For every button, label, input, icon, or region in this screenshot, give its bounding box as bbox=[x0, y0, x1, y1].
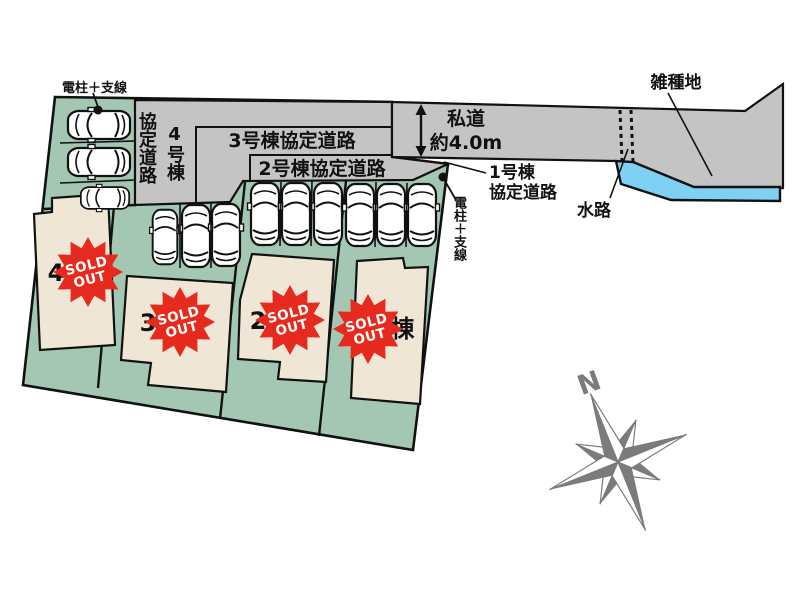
car bbox=[311, 183, 346, 245]
parking-divider-line bbox=[280, 182, 281, 246]
utility-pole-dot bbox=[94, 106, 103, 115]
car bbox=[209, 204, 244, 266]
utility-pole-label-top: 電柱＋支線 bbox=[62, 77, 127, 96]
car bbox=[68, 145, 130, 180]
waterway-label: 水路 bbox=[577, 200, 612, 221]
road1-label-line2: 協定道路 bbox=[489, 182, 558, 203]
car bbox=[343, 184, 378, 246]
parked-cars-plot3 bbox=[150, 204, 244, 267]
parking-divider-line bbox=[406, 183, 407, 247]
road1-leader bbox=[444, 162, 486, 173]
utility-pole-dot bbox=[439, 173, 448, 182]
parking-divider-line bbox=[311, 181, 312, 246]
road3-label: 3号棟協定道路 bbox=[228, 129, 356, 152]
car bbox=[150, 210, 181, 265]
road1-label-line1: 1号棟 bbox=[489, 162, 536, 183]
compass-rose bbox=[522, 366, 715, 559]
car bbox=[81, 184, 129, 211]
car bbox=[405, 184, 440, 246]
site-plan-canvas: 3号棟協定道路 2号棟協定道路 私道 約4.0m 1号棟 協定道路 雑種地 水路… bbox=[0, 0, 800, 600]
parking-divider-line bbox=[375, 182, 376, 247]
car bbox=[279, 183, 314, 245]
private-road-width-label: 約4.0m bbox=[430, 131, 502, 154]
road4-label-col2: 協定道路 bbox=[137, 112, 155, 184]
utility-pole-label-right: 電柱＋支線 bbox=[452, 196, 465, 261]
private-road-label: 私道 bbox=[447, 107, 485, 130]
car bbox=[374, 184, 409, 246]
car bbox=[179, 205, 214, 267]
misc-land-label: 雑種地 bbox=[650, 72, 702, 93]
road4-label-col1: 4号棟 bbox=[165, 124, 183, 181]
car bbox=[248, 183, 283, 245]
road2-label: 2号棟協定道路 bbox=[258, 157, 386, 180]
